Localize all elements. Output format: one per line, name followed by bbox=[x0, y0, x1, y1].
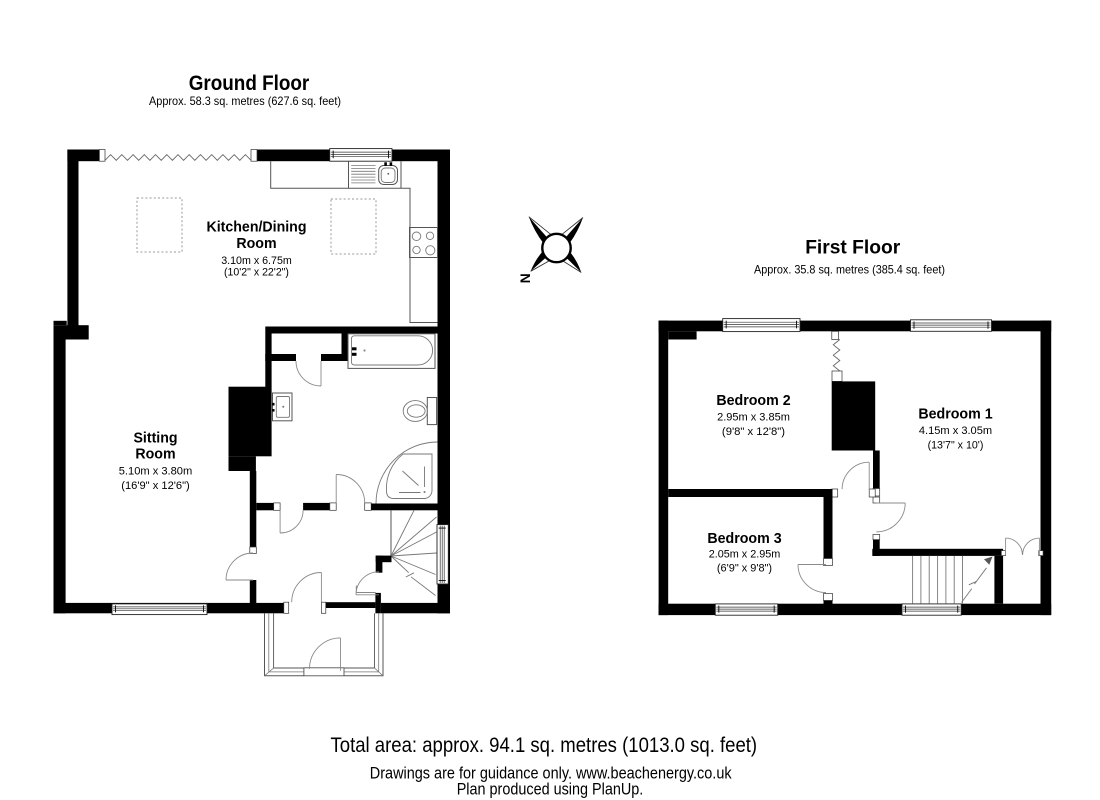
svg-text:Total area: approx. 94.1 sq. m: Total area: approx. 94.1 sq. metres (101… bbox=[331, 734, 758, 757]
svg-text:Approx. 58.3 sq. metres (627.6: Approx. 58.3 sq. metres (627.6 sq. feet) bbox=[149, 94, 341, 108]
svg-text:(10'2" x 22'2"): (10'2" x 22'2") bbox=[224, 267, 289, 279]
svg-text:Sitting: Sitting bbox=[134, 430, 178, 447]
svg-text:First Floor: First Floor bbox=[805, 237, 900, 259]
svg-text:Room: Room bbox=[236, 235, 276, 252]
svg-text:Bedroom 2: Bedroom 2 bbox=[716, 392, 790, 409]
svg-text:2.95m x 3.85m: 2.95m x 3.85m bbox=[717, 412, 790, 424]
svg-text:Kitchen/Dining: Kitchen/Dining bbox=[207, 219, 307, 236]
svg-text:4.15m x 3.05m: 4.15m x 3.05m bbox=[919, 425, 992, 437]
svg-text:3.10m x 6.75m: 3.10m x 6.75m bbox=[221, 255, 292, 267]
svg-text:(9'8" x 12'8"): (9'8" x 12'8") bbox=[722, 426, 785, 438]
svg-text:(13'7" x 10'): (13'7" x 10') bbox=[928, 440, 984, 452]
svg-text:5.10m x 3.80m: 5.10m x 3.80m bbox=[119, 466, 193, 478]
svg-text:Approx. 35.8 sq. metres (385.4: Approx. 35.8 sq. metres (385.4 sq. feet) bbox=[754, 263, 945, 277]
svg-text:(6'9" x 9'8"): (6'9" x 9'8") bbox=[717, 563, 772, 575]
svg-text:Plan produced using PlanUp.: Plan produced using PlanUp. bbox=[457, 781, 644, 799]
svg-text:(16'9" x 12'6"): (16'9" x 12'6") bbox=[121, 480, 190, 492]
svg-text:2.05m x 2.95m: 2.05m x 2.95m bbox=[709, 549, 781, 561]
svg-text:N: N bbox=[517, 273, 533, 283]
svg-text:Room: Room bbox=[135, 446, 175, 463]
svg-text:Bedroom 3: Bedroom 3 bbox=[707, 530, 781, 547]
svg-text:Bedroom 1: Bedroom 1 bbox=[918, 406, 992, 423]
svg-text:Ground Floor: Ground Floor bbox=[189, 72, 310, 95]
